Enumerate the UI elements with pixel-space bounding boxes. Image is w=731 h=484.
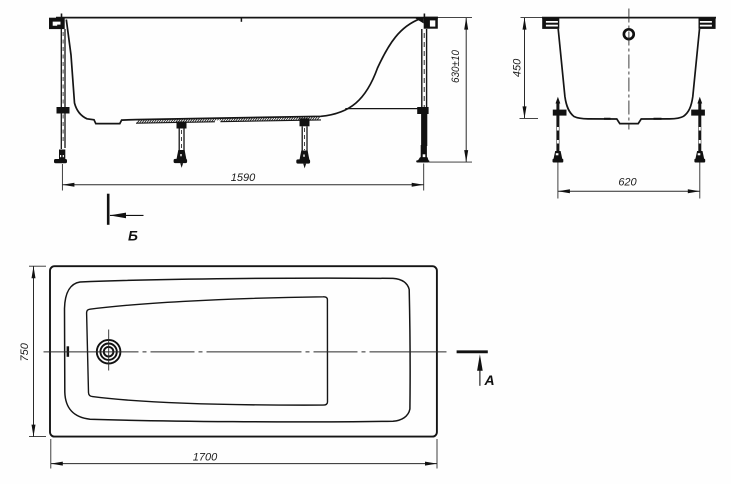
svg-text:1590: 1590 xyxy=(231,172,256,184)
svg-text:А: А xyxy=(484,372,495,388)
svg-text:Б: Б xyxy=(128,228,138,244)
svg-text:630±10: 630±10 xyxy=(450,49,462,83)
svg-text:750: 750 xyxy=(19,342,31,361)
svg-text:450: 450 xyxy=(512,58,524,77)
svg-text:1700: 1700 xyxy=(193,451,218,463)
svg-text:620: 620 xyxy=(618,176,637,188)
